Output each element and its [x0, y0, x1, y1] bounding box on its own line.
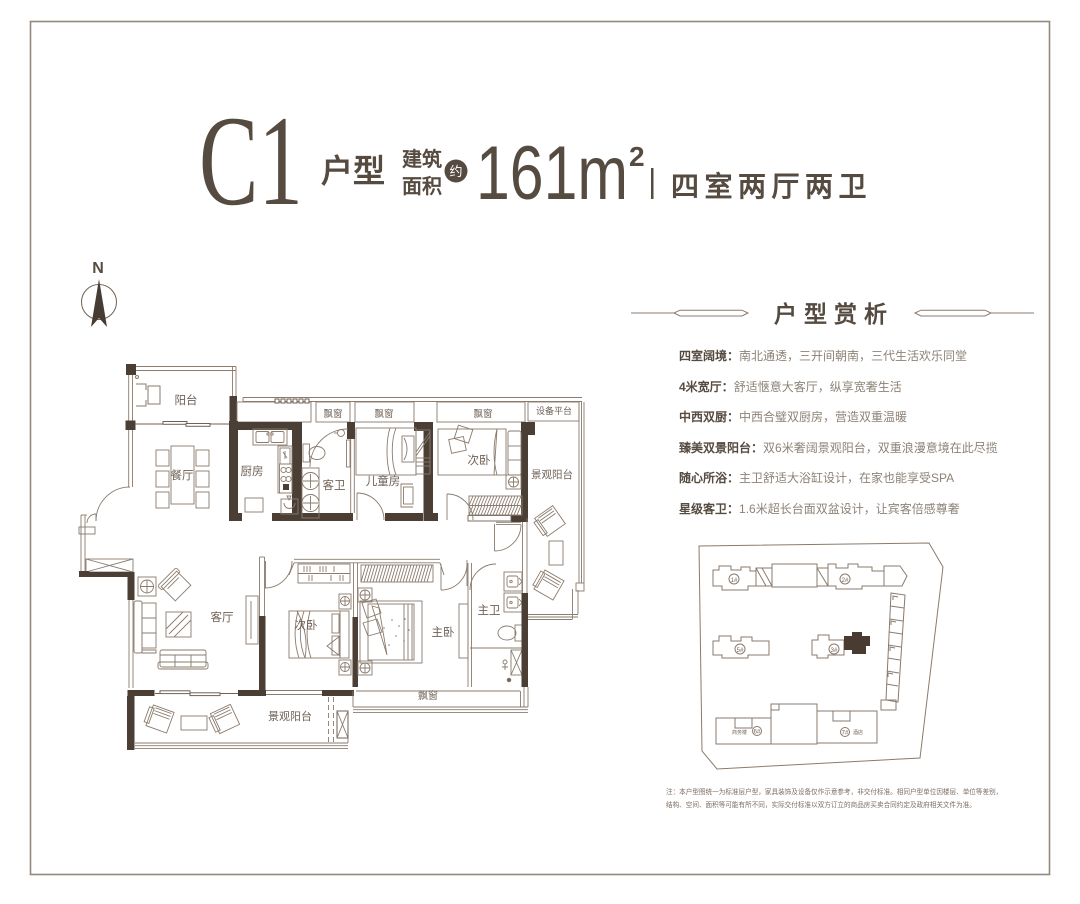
svg-text:飘窗: 飘窗	[473, 408, 492, 420]
svg-text:6#: 6#	[754, 730, 761, 736]
svg-text:中西双厨：中西合璧双厨房，营造双重温暖: 中西双厨：中西合璧双厨房，营造双重温暖	[679, 409, 907, 424]
svg-text:客卫: 客卫	[323, 478, 346, 492]
svg-text:次卧: 次卧	[468, 453, 491, 467]
svg-text:户型: 户型	[321, 153, 385, 189]
svg-text:四室阔境：南北通透，三开间朝南，三代生活欢乐同堂: 四室阔境：南北通透，三开间朝南，三代生活欢乐同堂	[679, 348, 967, 363]
svg-text:星级客卫：1.6米超长台面双盆设计，让宾客倍感尊奢: 星级客卫：1.6米超长台面双盆设计，让宾客倍感尊奢	[679, 501, 960, 516]
svg-text:景观阳台: 景观阳台	[531, 468, 573, 481]
svg-text:飘窗: 飘窗	[323, 408, 342, 420]
svg-text:建筑: 建筑	[402, 147, 442, 171]
svg-text:3#: 3#	[831, 648, 838, 654]
svg-text:飘窗: 飘窗	[418, 689, 438, 702]
svg-text:飘窗: 飘窗	[374, 408, 393, 420]
svg-text:C1: C1	[199, 89, 303, 232]
svg-text:4米宽厅：舒适惬意大客厅，纵享宽奢生活: 4米宽厅：舒适惬意大客厅，纵享宽奢生活	[679, 379, 902, 394]
svg-text:随心所浴：主卫舒适大浴缸设计，在家也能享受SPA: 随心所浴：主卫舒适大浴缸设计，在家也能享受SPA	[679, 470, 954, 485]
svg-text:2#: 2#	[842, 578, 849, 584]
svg-text:景观阳台: 景观阳台	[268, 709, 312, 723]
svg-text:面积: 面积	[402, 175, 442, 198]
svg-text:约: 约	[449, 164, 462, 179]
svg-text:户型赏析: 户型赏析	[774, 301, 894, 327]
svg-text:N: N	[92, 260, 104, 277]
svg-text:阳台: 阳台	[175, 393, 198, 407]
svg-text:7#: 7#	[842, 731, 849, 737]
svg-text:儿童房: 儿童房	[366, 474, 401, 488]
svg-text:1#: 1#	[731, 578, 738, 584]
svg-text:主卧: 主卧	[432, 626, 455, 639]
svg-text:四室两厅两卫: 四室两厅两卫	[671, 170, 872, 202]
svg-text:臻美双景阳台：双6米奢阔景观阳台，双重浪漫意境在此尽揽: 臻美双景阳台：双6米奢阔景观阳台，双重浪漫意境在此尽揽	[679, 440, 998, 455]
svg-text:主卫: 主卫	[478, 604, 501, 617]
svg-text:结构、空间、面积等可能有所不同，实际交付标准以双方订立的商品: 结构、空间、面积等可能有所不同，实际交付标准以双方订立的商品房买卖合同约定及政府…	[666, 800, 976, 809]
svg-text:次卧: 次卧	[295, 618, 318, 632]
svg-text:注：本户型图统一为标准层户型，家具装饰及设备仅作示意参考，非: 注：本户型图统一为标准层户型，家具装饰及设备仅作示意参考，非交付标准。相同户型单…	[666, 787, 1002, 796]
svg-text:餐厅: 餐厅	[171, 468, 194, 482]
svg-text:设备平台: 设备平台	[536, 405, 572, 416]
svg-text:161m: 161m	[476, 131, 628, 216]
svg-text:2: 2	[629, 141, 645, 172]
svg-text:客厅: 客厅	[211, 610, 234, 624]
svg-text:5#: 5#	[737, 648, 744, 654]
svg-text:酒店: 酒店	[853, 729, 863, 736]
svg-text:厨房: 厨房	[241, 465, 264, 478]
svg-text:商务楼: 商务楼	[732, 729, 747, 736]
